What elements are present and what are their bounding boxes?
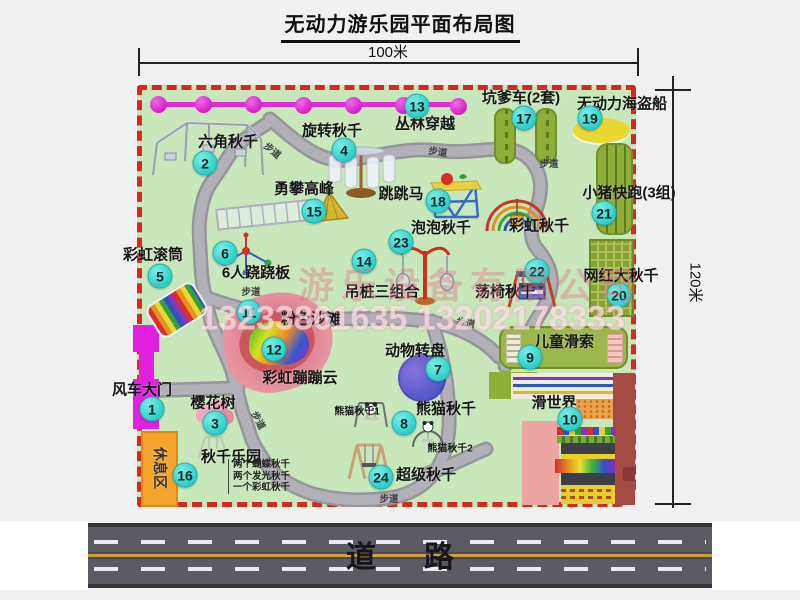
pirate-ship-icon (573, 118, 630, 143)
windmill-gate-icon (133, 379, 159, 429)
pit-car-track-icon (494, 108, 516, 164)
road-margin (712, 521, 800, 590)
zipline-node (345, 97, 362, 114)
rainbow-swing-arcs-icon (481, 179, 553, 237)
page-title: 无动力游乐园平面布局图 (0, 8, 800, 43)
road: 道路 (88, 523, 712, 588)
climbing-peak-icon (213, 189, 349, 237)
hexagon-swing-icon (149, 113, 267, 179)
map-decor-layer (137, 85, 636, 507)
pit-car-track-icon (535, 108, 557, 164)
rest-area-block (141, 431, 178, 507)
dimension-line-right (672, 76, 674, 508)
slide-world-icon (557, 436, 615, 443)
dimension-tick (637, 48, 639, 76)
seesaw-icon (219, 231, 273, 275)
dimension-line-top (139, 62, 639, 64)
dimension-tick (655, 503, 691, 505)
road-margin (0, 521, 88, 590)
slide-world-icon (555, 459, 615, 473)
chair-swing-icon (501, 269, 563, 309)
windmill-gate-icon (139, 352, 154, 379)
jumping-horse-icon (425, 171, 483, 223)
slide-world-icon (623, 467, 635, 481)
cherry-tree-icon (191, 399, 237, 437)
slide-world-icon (561, 473, 615, 485)
dimension-tick (138, 48, 140, 76)
slide-world-icon (561, 443, 615, 454)
dimension-tick (655, 89, 691, 91)
zipline-node (395, 97, 412, 114)
dimension-label-height: 120米 (686, 262, 707, 302)
road-label: 道路 (88, 532, 712, 576)
animal-turntable-icon (398, 354, 446, 402)
playground-plan-screenshot: 无动力游乐园平面布局图 100米 120米 (0, 0, 800, 600)
zipline-node (245, 96, 262, 113)
slide-world-icon (522, 421, 559, 505)
rainbow-cloud-icon (249, 321, 309, 365)
big-swing-net-icon (589, 239, 634, 317)
panda-swing-1-icon (349, 397, 393, 429)
slide-world-icon (561, 485, 615, 504)
zipline-node (295, 97, 312, 114)
slide-world-icon (513, 377, 617, 380)
pig-run-track-icon (596, 143, 633, 235)
slide-world-icon (576, 399, 618, 419)
dimension-label-width: 100米 (368, 41, 408, 62)
slide-world-icon (513, 391, 617, 394)
slide-world-icon (613, 373, 635, 505)
panda-swing-2-icon (409, 419, 447, 449)
zipline-node (450, 98, 467, 115)
zipline-node (150, 96, 167, 113)
kids-zipline-icon (607, 334, 623, 363)
park-swing-sketch-icon (195, 433, 231, 459)
bubble-swing-icon (395, 237, 457, 311)
kids-zipline-icon (506, 334, 521, 363)
super-swing-icon (343, 437, 393, 483)
slide-world-icon (513, 384, 617, 387)
slide-world-icon (557, 427, 615, 435)
zipline-node (195, 96, 212, 113)
